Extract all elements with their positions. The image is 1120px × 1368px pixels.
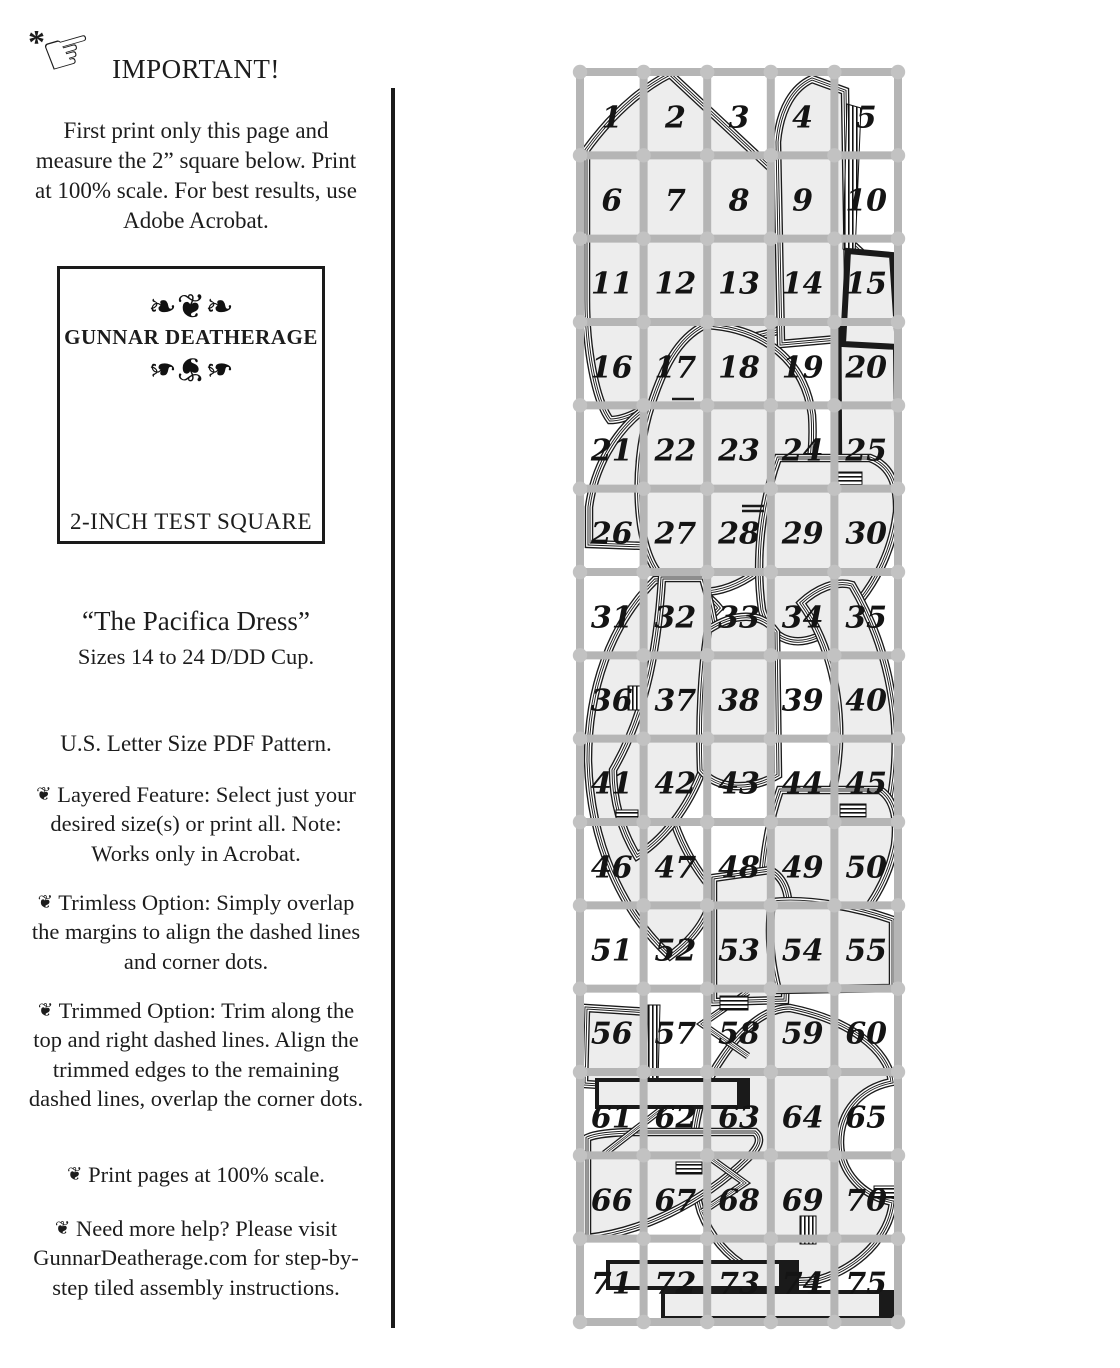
tile-number: 10: [845, 183, 887, 218]
tile-number: 56: [591, 1017, 633, 1052]
tile-number: 46: [591, 850, 633, 885]
tile-number: 49: [782, 850, 824, 885]
tile-number: 1: [601, 100, 622, 135]
tile-number: 23: [718, 433, 760, 468]
tile-number: 15: [845, 267, 887, 302]
tile-numbers-layer: 1234567891011121314151617181920212223242…: [0, 0, 1120, 1368]
tile-number: 25: [845, 433, 887, 468]
tile-number: 40: [845, 683, 887, 718]
tile-number: 55: [845, 933, 887, 968]
tile-number: 63: [718, 1100, 760, 1135]
tile-number: 58: [718, 1017, 760, 1052]
tile-number: 28: [718, 517, 760, 552]
tile-number: 7: [665, 183, 686, 218]
tile-number: 3: [729, 100, 750, 135]
tile-number: 27: [655, 517, 697, 552]
tile-number: 35: [845, 600, 887, 635]
tile-number: 5: [856, 100, 877, 135]
tile-number: 42: [655, 767, 697, 802]
tile-number: 2: [665, 100, 686, 135]
tile-number: 38: [718, 683, 760, 718]
tile-number: 47: [655, 850, 697, 885]
tile-number: 16: [591, 350, 633, 385]
tile-number: 11: [591, 267, 633, 302]
tile-number: 20: [845, 350, 887, 385]
tile-number: 67: [655, 1183, 697, 1218]
tile-number: 4: [792, 100, 813, 135]
tile-number: 50: [845, 850, 887, 885]
tile-number: 71: [591, 1267, 633, 1302]
tile-number: 8: [729, 183, 750, 218]
tile-number: 24: [782, 433, 824, 468]
tile-number: 72: [655, 1267, 697, 1302]
tile-number: 39: [782, 683, 824, 718]
tile-number: 70: [845, 1183, 887, 1218]
tile-number: 22: [655, 433, 697, 468]
tile-number: 73: [718, 1267, 760, 1302]
tile-number: 52: [655, 933, 697, 968]
tile-number: 12: [655, 267, 697, 302]
tile-number: 18: [718, 350, 760, 385]
tile-number: 60: [845, 1017, 887, 1052]
tile-number: 69: [782, 1183, 824, 1218]
tile-number: 44: [782, 767, 824, 802]
tile-number: 17: [655, 350, 697, 385]
tile-number: 29: [782, 517, 824, 552]
tile-number: 32: [655, 600, 697, 635]
tile-number: 43: [718, 767, 760, 802]
tile-number: 51: [591, 933, 633, 968]
tile-number: 19: [782, 350, 824, 385]
tile-number: 9: [792, 183, 813, 218]
tile-number: 61: [591, 1100, 633, 1135]
tile-number: 34: [782, 600, 824, 635]
tile-number: 6: [601, 183, 622, 218]
tile-number: 30: [845, 517, 887, 552]
tile-number: 64: [782, 1100, 824, 1135]
tile-number: 48: [718, 850, 760, 885]
tile-number: 68: [718, 1183, 760, 1218]
tile-number: 33: [718, 600, 760, 635]
tile-number: 59: [782, 1017, 824, 1052]
tile-number: 74: [782, 1267, 824, 1302]
tile-number: 54: [782, 933, 824, 968]
tile-number: 26: [591, 517, 633, 552]
tile-number: 65: [845, 1100, 887, 1135]
tile-number: 41: [591, 767, 633, 802]
tile-number: 45: [845, 767, 887, 802]
tile-number: 37: [655, 683, 697, 718]
tile-number: 62: [655, 1100, 697, 1135]
tile-number: 13: [718, 267, 760, 302]
tile-number: 31: [591, 600, 633, 635]
tile-number: 21: [591, 433, 633, 468]
tile-number: 66: [591, 1183, 633, 1218]
tile-number: 75: [845, 1267, 887, 1302]
tile-number: 57: [655, 1017, 697, 1052]
tile-number: 14: [782, 267, 824, 302]
tile-number: 36: [591, 683, 633, 718]
tile-number: 53: [718, 933, 760, 968]
